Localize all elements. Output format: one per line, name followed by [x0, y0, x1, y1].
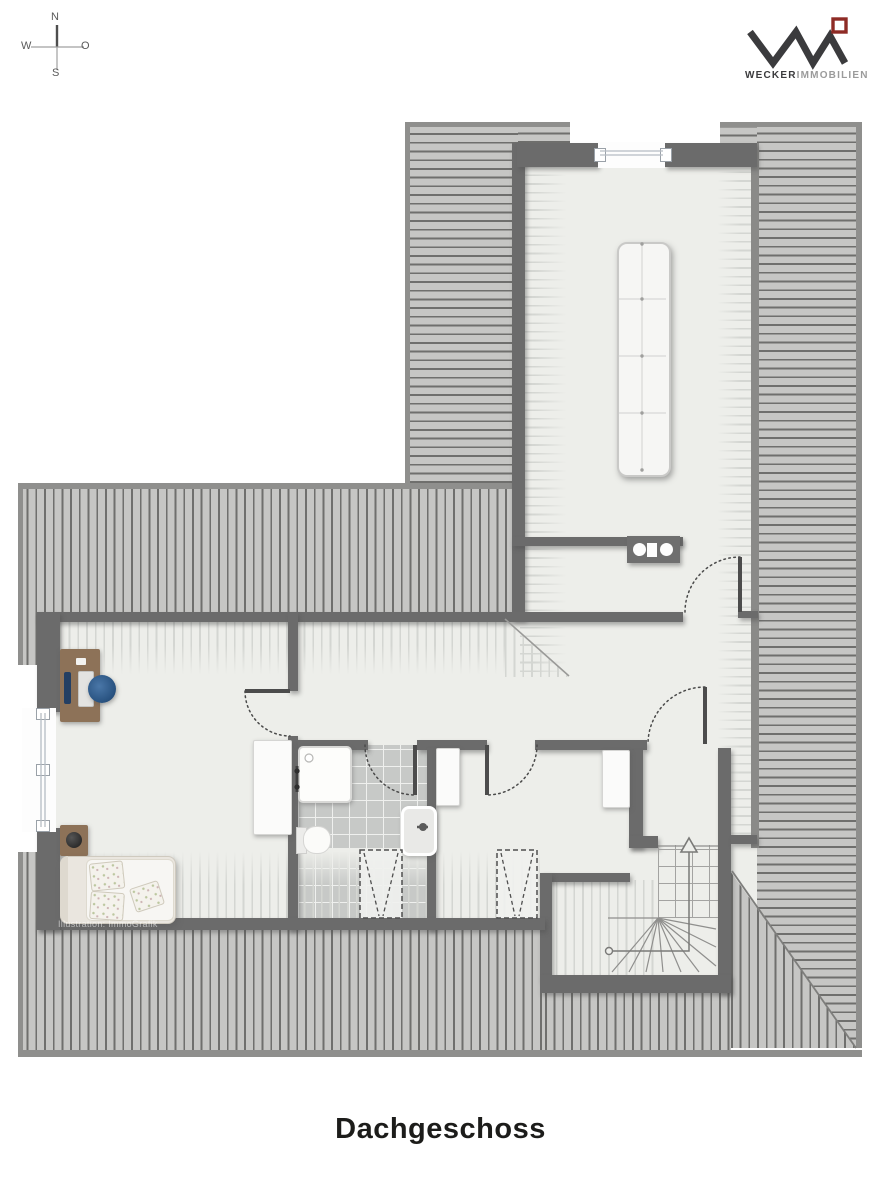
compass-east-label: O [81, 40, 90, 52]
compass-south-label: S [52, 67, 59, 79]
logo-secondary-text: IMMOBILIEN [797, 70, 869, 81]
compass-north-label: N [51, 11, 59, 23]
floorplan-page: N W O S WECKERIMMOBILIEN Illustration: I… [0, 0, 881, 1200]
logo-mark-icon [750, 19, 846, 63]
skylight [360, 850, 537, 918]
shower-fittings [294, 754, 313, 792]
compass-west-label: W [21, 40, 31, 52]
window-glass-lines [41, 151, 663, 827]
compass-rose-icon [31, 25, 84, 70]
door-swing-arcs [245, 557, 740, 795]
floor-title: Dachgeschoss [0, 1113, 881, 1146]
roof-hip-line [732, 871, 856, 1048]
washbasin-tap [417, 823, 428, 831]
ceiling-hip-line [505, 619, 569, 676]
staircase-winders [608, 846, 718, 972]
illustration-credit: Illustration: ImmoGrafik [58, 919, 158, 929]
logo-primary-text: WECKER [745, 70, 797, 81]
plan-overlay [0, 0, 881, 1200]
logo-wordmark: WECKERIMMOBILIEN [745, 70, 869, 81]
stair-direction-arrow [606, 838, 698, 955]
